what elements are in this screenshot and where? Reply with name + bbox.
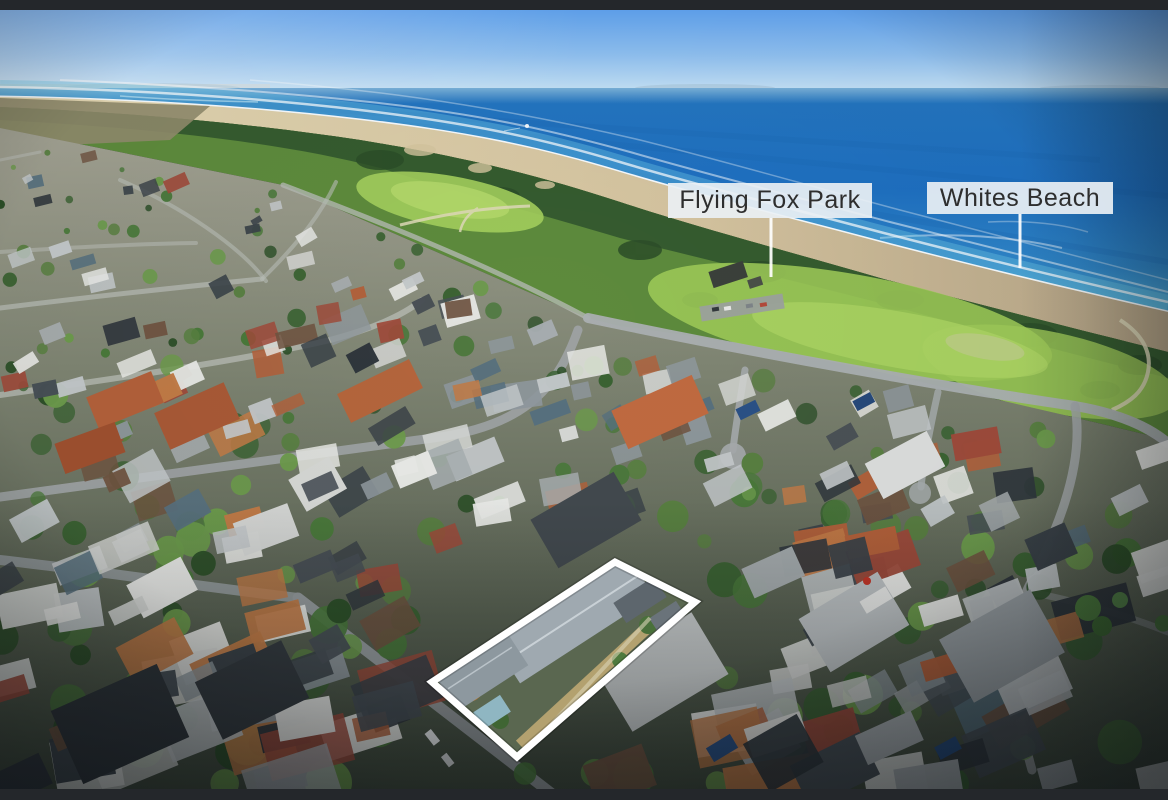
letterbox-bottom (0, 789, 1168, 800)
aerial-photo-canvas (0, 0, 1168, 800)
letterbox-top (0, 0, 1168, 10)
beach-label: Whites Beach (927, 182, 1113, 214)
park-label: Flying Fox Park (668, 183, 872, 218)
aerial-listing-photo: Flying Fox Park Whites Beach (0, 0, 1168, 800)
vignette-right (1020, 10, 1168, 790)
